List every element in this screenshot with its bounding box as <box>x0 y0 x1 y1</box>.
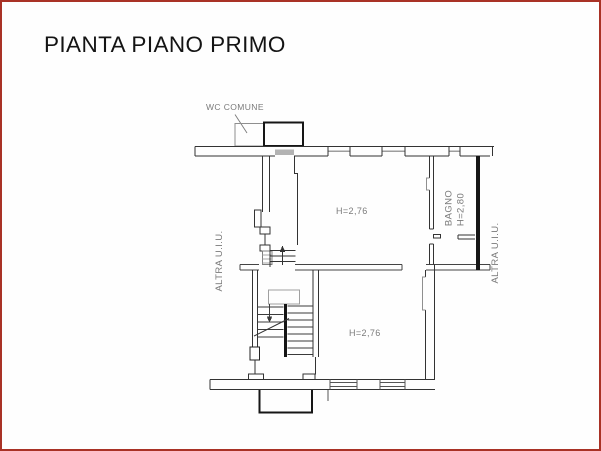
bathroom-label: BAGNOH=2,80 <box>444 190 467 226</box>
other-unit-left-label: ALTRA U.I.U. <box>215 230 225 291</box>
right-wall-notch <box>423 277 426 310</box>
wc-room-outline <box>235 123 303 147</box>
wc-common-label: WC COMUNE <box>206 102 264 112</box>
left-party-wall <box>255 156 271 251</box>
lower-room-height-label: H=2,76 <box>349 328 381 338</box>
upper-room-height-label: H=2,76 <box>336 206 368 216</box>
bathroom-name: BAGNO <box>444 190 455 226</box>
stair-break-line <box>254 319 289 337</box>
top-wall-windows <box>275 147 460 157</box>
bottom-wall <box>210 374 435 390</box>
stair-up-arrowhead <box>280 246 286 253</box>
other-unit-right-label: ALTRA U.I.U. <box>491 222 501 283</box>
corridor-wall <box>295 156 298 245</box>
interior-wall <box>240 265 490 271</box>
lower-room-right-wall <box>423 265 435 380</box>
bottom-wall-windows <box>328 380 405 402</box>
floor-plan-drawing <box>2 2 601 451</box>
stairs <box>254 290 313 357</box>
balcony <box>260 390 313 413</box>
floor-plan-page: PIANTA PIANO PRIMO <box>0 0 601 451</box>
left-wall-hatched-window <box>263 251 273 265</box>
bathroom-height: H=2,80 <box>455 193 466 226</box>
corridor-door-opening <box>275 150 294 156</box>
bathroom-wall-notch <box>427 178 430 190</box>
